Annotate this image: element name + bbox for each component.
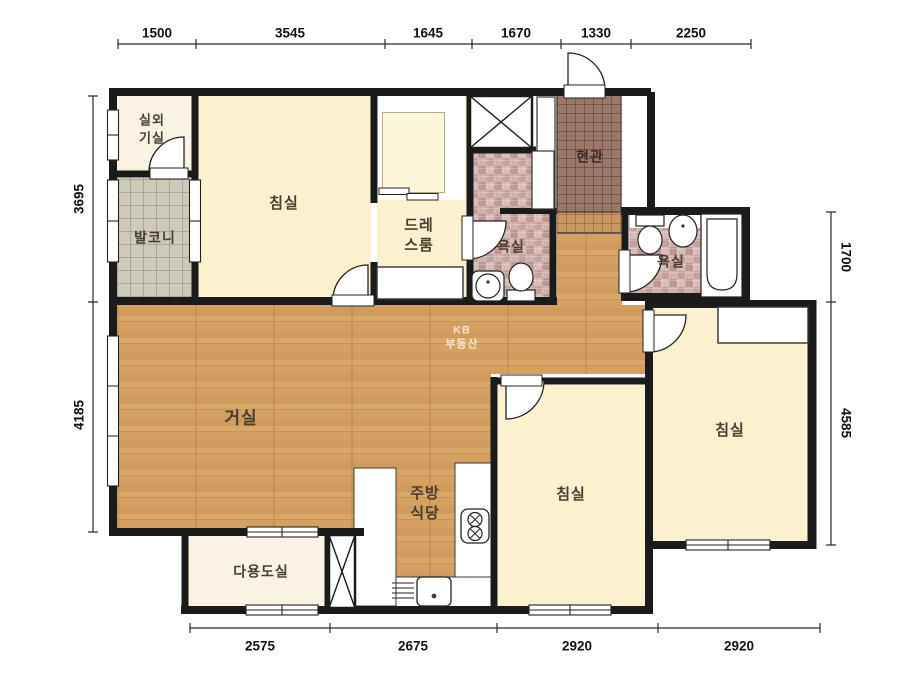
window-bedroom2-bottom xyxy=(529,605,611,615)
label-entrance: 현관 xyxy=(576,148,604,167)
label-dressroom: 드레 스룸 xyxy=(404,216,434,257)
window-utility-bottom xyxy=(246,605,318,615)
dim-top-2: 1645 xyxy=(413,26,443,41)
dim-top-0: 1500 xyxy=(142,26,172,41)
bathroom1-toilet-icon xyxy=(507,263,535,301)
label-dressroom-line2: 스룸 xyxy=(404,237,434,254)
duct-shaft-top xyxy=(470,96,532,148)
dim-bottom-1: 2675 xyxy=(398,639,428,654)
label-kitchen: 주방 식당 xyxy=(410,484,440,525)
kb-watermark: KB 부동산 xyxy=(445,324,478,353)
label-outdoor-unit-line2: 기실 xyxy=(139,130,165,145)
label-living: 거실 xyxy=(224,408,257,431)
label-bedroom1: 침실 xyxy=(269,194,299,214)
bedroom3-door xyxy=(643,310,686,352)
dim-top-4: 1330 xyxy=(581,26,611,41)
label-outdoor-unit: 실외 기실 xyxy=(139,111,165,146)
bathroom1-sink-icon xyxy=(472,271,504,301)
dim-bottom-0: 2575 xyxy=(245,639,275,654)
kb-watermark-line1: KB xyxy=(453,325,471,337)
label-utility: 다용도실 xyxy=(233,563,289,582)
dim-top-5: 2250 xyxy=(676,26,706,41)
window-balcony-left xyxy=(108,180,119,262)
bedroom1-door xyxy=(332,265,374,306)
bedroom3-closet xyxy=(718,307,808,343)
floorplan-canvas: 실외 기실 발코니 침실 드레 스룸 욕실 현관 욕실 거실 주방 식당 다용도… xyxy=(0,0,923,676)
dim-bottom-2: 2920 xyxy=(562,639,592,654)
dim-right-0: 1700 xyxy=(839,242,854,272)
kb-watermark-line2: 부동산 xyxy=(445,339,478,351)
label-kitchen-line1: 주방 xyxy=(410,485,440,502)
closet-sliding-door-icon xyxy=(379,188,438,200)
bathroom2-toilet-icon xyxy=(636,215,664,254)
dim-top-1: 3545 xyxy=(275,26,305,41)
shoe-closet xyxy=(532,97,555,209)
entrance-door xyxy=(564,53,605,98)
window-outdoor-unit xyxy=(108,110,119,160)
dim-left-1: 4185 xyxy=(72,400,87,430)
bathroom2-bathtub-icon xyxy=(701,214,742,297)
bathroom2-sink-icon xyxy=(669,215,697,247)
dim-line-right xyxy=(826,212,836,545)
window-balcony-bedroom1 xyxy=(190,180,201,262)
label-bathroom2: 욕실 xyxy=(657,253,685,272)
label-bedroom2: 침실 xyxy=(556,485,586,505)
label-bedroom3: 침실 xyxy=(715,421,745,441)
bathroom2-door xyxy=(619,250,662,293)
label-kitchen-line2: 식당 xyxy=(410,505,440,522)
label-outdoor-unit-line1: 실외 xyxy=(139,112,165,127)
dim-top-3: 1670 xyxy=(501,26,531,41)
dim-left-0: 3695 xyxy=(72,184,87,214)
dim-right-1: 4585 xyxy=(839,408,854,438)
label-dressroom-line1: 드레 xyxy=(404,217,434,234)
bedroom2-door xyxy=(501,375,544,419)
sliding-door-utility-top xyxy=(247,527,318,537)
dim-line-left xyxy=(88,96,98,532)
label-bathroom1: 욕실 xyxy=(497,238,525,257)
dim-line-bottom xyxy=(190,623,820,633)
dim-bottom-3: 2920 xyxy=(724,639,754,654)
duct-shaft-bottom xyxy=(329,535,355,608)
dressroom-lower-closet xyxy=(377,267,463,299)
label-balcony: 발코니 xyxy=(134,229,176,248)
window-bedroom3-bottom xyxy=(686,540,770,550)
windows xyxy=(108,110,771,615)
stove-icon xyxy=(461,509,489,543)
window-living-left xyxy=(108,336,119,486)
dim-line-top xyxy=(118,39,751,49)
